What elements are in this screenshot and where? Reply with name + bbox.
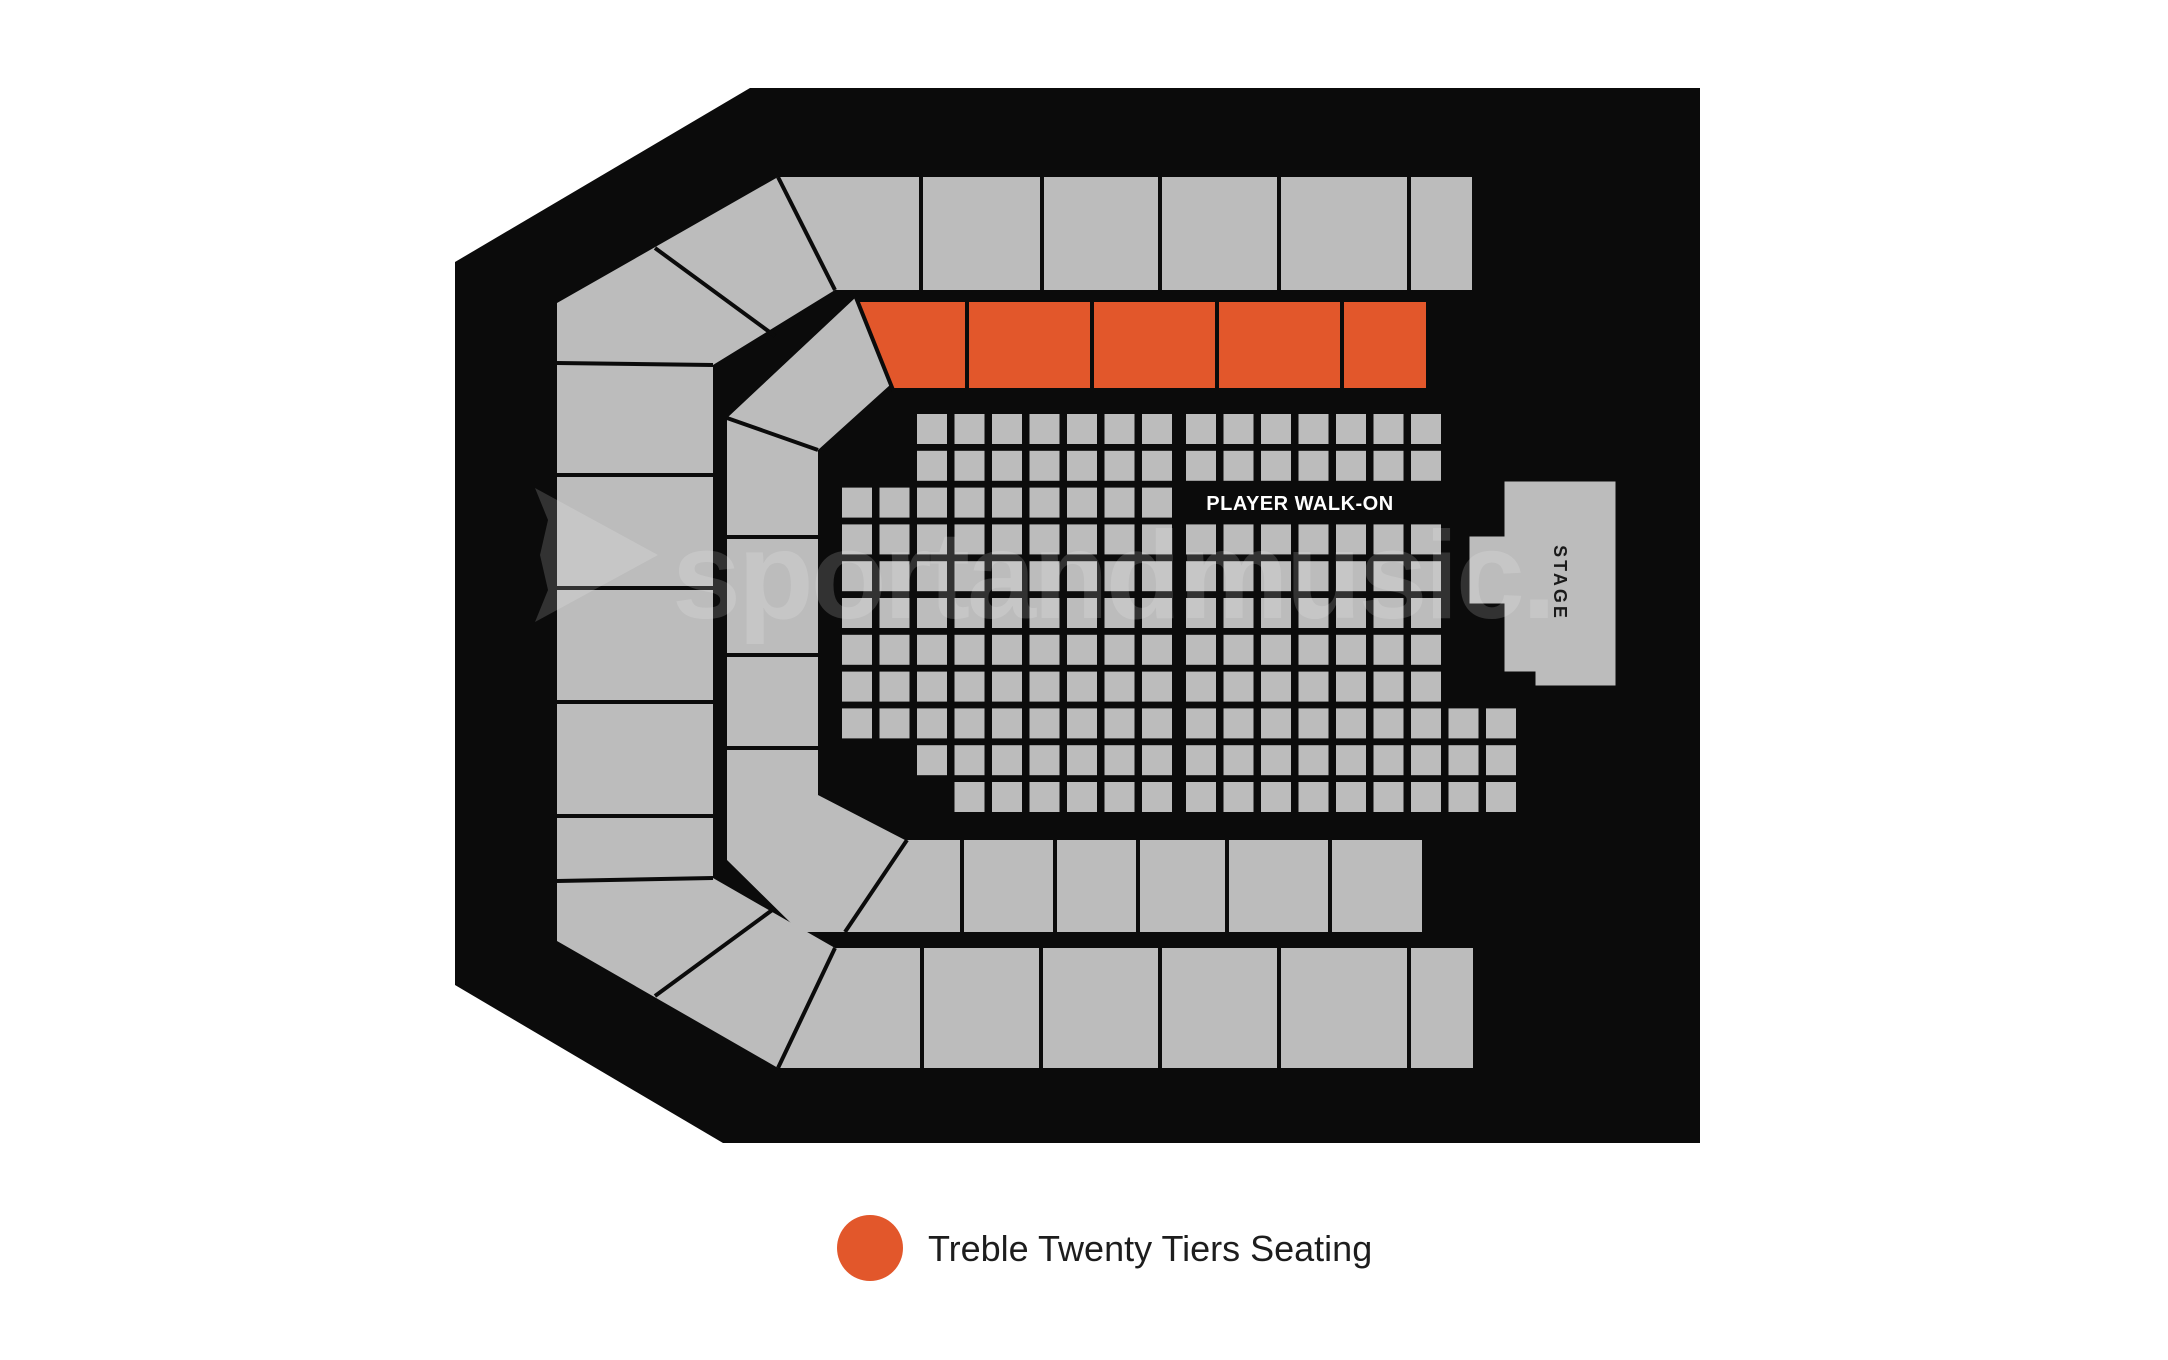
seat-unit <box>1105 414 1135 444</box>
seat-unit <box>917 708 947 738</box>
seat-unit <box>1030 414 1060 444</box>
legend-swatch <box>837 1215 903 1281</box>
treble-twenty-section-4[interactable] <box>1217 300 1342 390</box>
seat-unit <box>917 414 947 444</box>
seat-unit <box>1449 782 1479 812</box>
seat-unit <box>880 708 910 738</box>
seat-unit <box>1224 672 1254 702</box>
seat-unit <box>992 708 1022 738</box>
seat-unit <box>1224 782 1254 812</box>
seat-unit <box>1186 451 1216 481</box>
seat-unit <box>1336 782 1366 812</box>
seat-unit <box>1142 782 1172 812</box>
legend-label: Treble Twenty Tiers Seating <box>928 1228 1372 1269</box>
seat-unit <box>955 745 985 775</box>
seat-unit <box>1224 451 1254 481</box>
seat-unit <box>1411 414 1441 444</box>
seat-unit <box>1449 708 1479 738</box>
seat-unit <box>992 745 1022 775</box>
seat-unit <box>1411 745 1441 775</box>
seat-unit <box>992 451 1022 481</box>
seat-unit <box>955 708 985 738</box>
seat-unit <box>1142 672 1172 702</box>
seat-unit <box>1336 451 1366 481</box>
seat-unit <box>1374 708 1404 738</box>
seat-unit <box>842 708 872 738</box>
seat-unit <box>1411 451 1441 481</box>
seat-unit <box>842 672 872 702</box>
seat-unit <box>992 782 1022 812</box>
legend: Treble Twenty Tiers Seating <box>837 1215 1372 1281</box>
seat-unit <box>1067 708 1097 738</box>
seat-unit <box>1030 451 1060 481</box>
seat-unit <box>917 451 947 481</box>
seat-unit <box>1336 708 1366 738</box>
seat-unit <box>1299 745 1329 775</box>
seat-unit <box>1030 708 1060 738</box>
seat-unit <box>1224 708 1254 738</box>
seat-unit <box>1067 782 1097 812</box>
seat-unit <box>880 672 910 702</box>
seat-unit <box>1374 745 1404 775</box>
seat-unit <box>1030 782 1060 812</box>
seat-unit <box>1486 708 1516 738</box>
seat-unit <box>1105 708 1135 738</box>
seat-unit <box>1224 745 1254 775</box>
seat-unit <box>1336 414 1366 444</box>
seat-unit <box>1105 745 1135 775</box>
seat-unit <box>1261 672 1291 702</box>
watermark-text: sportandmusic. <box>672 507 1553 645</box>
seat-unit <box>1105 451 1135 481</box>
seat-unit <box>1411 782 1441 812</box>
seat-unit <box>992 672 1022 702</box>
seat-unit <box>1142 451 1172 481</box>
seat-unit <box>1261 745 1291 775</box>
seat-unit <box>1374 451 1404 481</box>
seat-unit <box>1261 708 1291 738</box>
seat-unit <box>1186 672 1216 702</box>
seat-unit <box>1186 745 1216 775</box>
seat-unit <box>1261 414 1291 444</box>
seat-unit <box>1186 414 1216 444</box>
seat-unit <box>1374 414 1404 444</box>
seat-unit <box>955 451 985 481</box>
seat-unit <box>955 672 985 702</box>
seat-unit <box>1224 414 1254 444</box>
seat-unit <box>1336 672 1366 702</box>
treble-twenty-tiers-row <box>857 300 1428 390</box>
seat-unit <box>1067 451 1097 481</box>
seat-unit <box>1299 782 1329 812</box>
treble-twenty-section-5[interactable] <box>1342 300 1428 390</box>
seat-unit <box>1411 672 1441 702</box>
seat-unit <box>1449 745 1479 775</box>
seat-unit <box>1261 782 1291 812</box>
seat-unit <box>1411 708 1441 738</box>
seat-unit <box>1299 672 1329 702</box>
seat-unit <box>1186 708 1216 738</box>
seat-unit <box>1374 782 1404 812</box>
seat-unit <box>955 782 985 812</box>
venue-seat-map: PLAYER WALK-ON STAGE sportandmusic. Treb… <box>0 0 2168 1360</box>
seat-unit <box>917 672 947 702</box>
seat-unit <box>1336 745 1366 775</box>
seat-unit <box>1142 414 1172 444</box>
seat-unit <box>1142 708 1172 738</box>
seat-unit <box>1067 672 1097 702</box>
seat-unit <box>917 745 947 775</box>
seat-unit <box>1105 782 1135 812</box>
seat-unit <box>1030 745 1060 775</box>
seat-unit <box>1105 672 1135 702</box>
seat-unit <box>1186 782 1216 812</box>
seat-unit <box>1299 414 1329 444</box>
seat-unit <box>1261 451 1291 481</box>
seat-unit <box>1486 745 1516 775</box>
treble-twenty-section-2[interactable] <box>967 300 1092 390</box>
seat-unit <box>1299 708 1329 738</box>
treble-twenty-section-3[interactable] <box>1092 300 1217 390</box>
seat-unit <box>1142 745 1172 775</box>
seat-unit <box>1030 672 1060 702</box>
seat-unit <box>1374 672 1404 702</box>
watermark: sportandmusic. <box>535 488 1553 645</box>
seat-unit <box>1299 451 1329 481</box>
seat-unit <box>955 414 985 444</box>
seat-unit <box>992 414 1022 444</box>
seat-unit <box>1067 745 1097 775</box>
seat-unit <box>1486 782 1516 812</box>
seat-unit <box>1067 414 1097 444</box>
